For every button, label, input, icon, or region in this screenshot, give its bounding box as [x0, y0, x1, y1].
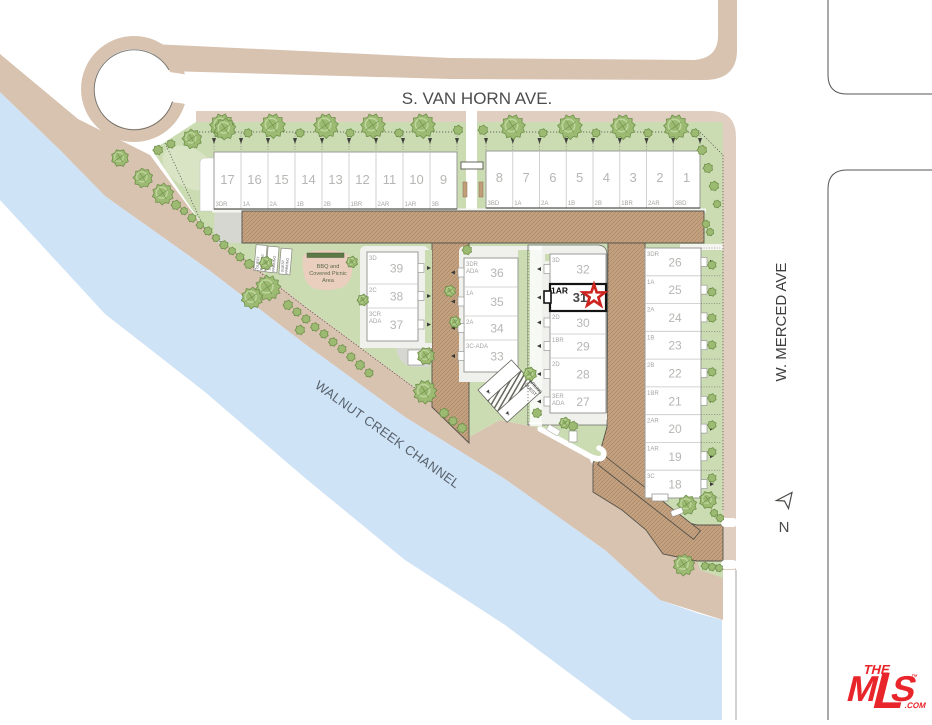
svg-text:29: 29 [576, 340, 590, 354]
svg-text:2: 2 [656, 170, 663, 185]
svg-text:32: 32 [576, 263, 590, 277]
svg-text:12: 12 [355, 172, 369, 187]
svg-text:S. VAN HORN AVE.: S. VAN HORN AVE. [402, 89, 553, 108]
svg-text:1BR: 1BR [351, 202, 363, 208]
svg-text:.COM: .COM [904, 701, 927, 710]
svg-text:6: 6 [549, 170, 556, 185]
svg-text:1AR: 1AR [405, 202, 417, 208]
svg-text:1B: 1B [568, 201, 575, 207]
svg-text:26: 26 [668, 255, 682, 269]
svg-text:20: 20 [668, 422, 682, 436]
svg-text:2A: 2A [270, 202, 277, 208]
svg-text:1: 1 [683, 170, 690, 185]
svg-text:3D: 3D [552, 258, 560, 264]
svg-text:2AR: 2AR [648, 201, 660, 207]
svg-text:15: 15 [274, 172, 288, 187]
svg-text:1AR: 1AR [647, 446, 659, 452]
svg-text:BBQ and: BBQ and [317, 264, 340, 270]
svg-text:23: 23 [668, 339, 682, 353]
svg-text:W. MERCED AVE: W. MERCED AVE [773, 263, 790, 382]
svg-text:37: 37 [390, 318, 404, 332]
svg-text:2D: 2D [552, 362, 560, 368]
svg-text:1A: 1A [466, 291, 473, 297]
svg-text:2A: 2A [541, 201, 548, 207]
svg-text:3C: 3C [647, 474, 655, 480]
svg-text:1BR: 1BR [552, 338, 564, 344]
svg-text:38: 38 [390, 290, 404, 304]
svg-text:2B: 2B [324, 202, 331, 208]
svg-text:3BD: 3BD [675, 201, 687, 207]
svg-text:10: 10 [409, 172, 423, 187]
svg-text:1A: 1A [514, 201, 521, 207]
svg-text:13: 13 [328, 172, 342, 187]
svg-text:3D: 3D [369, 256, 377, 262]
svg-text:24: 24 [668, 311, 682, 325]
svg-text:9: 9 [440, 172, 447, 187]
svg-text:7: 7 [522, 170, 529, 185]
svg-text:27: 27 [576, 395, 590, 409]
svg-text:1AR: 1AR [551, 286, 568, 296]
svg-text:33: 33 [490, 350, 504, 364]
svg-text:2C: 2C [369, 288, 377, 294]
svg-text:8: 8 [496, 170, 503, 185]
svg-text:2D: 2D [552, 315, 560, 321]
svg-text:3C-ADA: 3C-ADA [466, 344, 488, 350]
svg-text:2B: 2B [647, 363, 654, 369]
svg-text:2B: 2B [595, 201, 602, 207]
svg-text:3ER: 3ER [552, 394, 564, 400]
svg-text:3: 3 [629, 170, 636, 185]
svg-text:4: 4 [603, 170, 610, 185]
svg-text:1A: 1A [647, 280, 654, 286]
svg-text:25: 25 [668, 283, 682, 297]
svg-text:22: 22 [668, 367, 682, 381]
svg-text:ADA: ADA [466, 269, 478, 275]
svg-text:5: 5 [576, 170, 583, 185]
svg-text:Covered Picnic: Covered Picnic [309, 271, 347, 277]
svg-text:2A: 2A [647, 308, 654, 314]
svg-text:Area: Area [322, 278, 335, 284]
svg-text:1BR: 1BR [647, 391, 659, 397]
svg-text:17: 17 [220, 172, 234, 187]
svg-text:28: 28 [576, 368, 590, 382]
svg-text:39: 39 [390, 262, 404, 276]
svg-text:3BD: 3BD [488, 201, 500, 207]
svg-text:30: 30 [576, 316, 590, 330]
svg-text:11: 11 [383, 172, 397, 187]
svg-text:ADA: ADA [552, 401, 564, 407]
svg-text:3CR: 3CR [369, 312, 382, 318]
svg-text:N: N [779, 519, 790, 536]
svg-text:3DR: 3DR [216, 202, 229, 208]
svg-text:2AR: 2AR [378, 202, 390, 208]
svg-text:19: 19 [668, 450, 682, 464]
svg-text:14: 14 [301, 172, 315, 187]
svg-text:1B: 1B [297, 202, 304, 208]
svg-text:21: 21 [668, 394, 682, 408]
svg-text:35: 35 [490, 295, 504, 309]
svg-text:1B: 1B [647, 335, 654, 341]
svg-text:1BR: 1BR [621, 201, 633, 207]
svg-text:3B: 3B [432, 202, 439, 208]
svg-text:1A: 1A [243, 202, 250, 208]
svg-text:36: 36 [490, 266, 504, 280]
svg-text:18: 18 [668, 478, 682, 492]
svg-text:16: 16 [247, 172, 261, 187]
svg-text:3DR: 3DR [647, 252, 660, 258]
svg-text:34: 34 [490, 322, 504, 336]
svg-text:2A: 2A [466, 320, 473, 326]
svg-text:2AR: 2AR [647, 419, 659, 425]
svg-text:ADA: ADA [369, 319, 381, 325]
svg-text:3DR: 3DR [466, 262, 479, 268]
